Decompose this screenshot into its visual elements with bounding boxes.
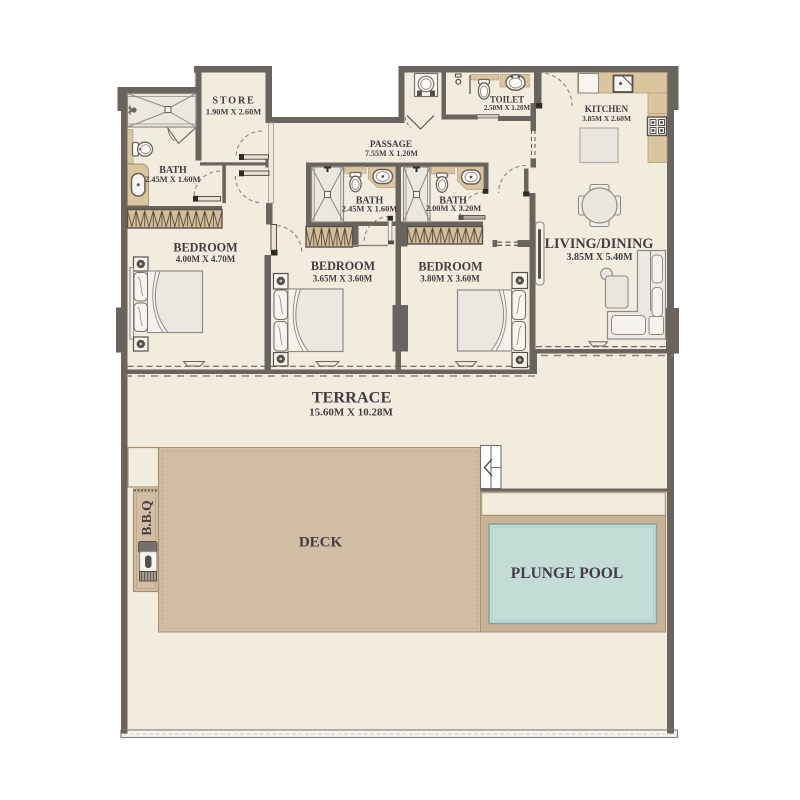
svg-text:4.00M X 4.70M: 4.00M X 4.70M bbox=[176, 254, 236, 264]
svg-text:STORE: STORE bbox=[212, 96, 255, 107]
svg-text:3.65M X 3.60M: 3.65M X 3.60M bbox=[313, 273, 373, 283]
svg-text:DECK: DECK bbox=[299, 535, 343, 551]
svg-text:KITCHEN: KITCHEN bbox=[585, 104, 629, 114]
svg-text:B.B.Q: B.B.Q bbox=[139, 500, 154, 535]
svg-text:TOILET: TOILET bbox=[490, 95, 524, 105]
svg-text:3.80M X 3.60M: 3.80M X 3.60M bbox=[420, 273, 480, 283]
svg-text:7.55M X 1.20M: 7.55M X 1.20M bbox=[365, 149, 418, 158]
svg-text:3.85M X 2.60M: 3.85M X 2.60M bbox=[582, 114, 631, 123]
svg-text:BEDROOM: BEDROOM bbox=[418, 259, 483, 273]
svg-text:2.45M X 1.60M: 2.45M X 1.60M bbox=[342, 204, 397, 213]
svg-text:TERRACE: TERRACE bbox=[312, 387, 392, 406]
svg-text:2.00M X 3.20M: 2.00M X 3.20M bbox=[426, 204, 481, 213]
svg-text:3.85M X 5.40M: 3.85M X 5.40M bbox=[566, 252, 633, 263]
svg-text:1.90M X 2.60M: 1.90M X 2.60M bbox=[206, 108, 261, 117]
svg-text:LIVING/DINING: LIVING/DINING bbox=[545, 236, 654, 252]
svg-text:PLUNGE POOL: PLUNGE POOL bbox=[511, 565, 623, 582]
svg-text:2.45M X 1.60M: 2.45M X 1.60M bbox=[145, 175, 200, 184]
svg-text:2.50M X 1.20M: 2.50M X 1.20M bbox=[484, 104, 531, 112]
svg-text:BEDROOM: BEDROOM bbox=[173, 241, 238, 255]
svg-text:BEDROOM: BEDROOM bbox=[311, 259, 376, 273]
svg-text:15.60M X 10.28M: 15.60M X 10.28M bbox=[309, 406, 393, 418]
